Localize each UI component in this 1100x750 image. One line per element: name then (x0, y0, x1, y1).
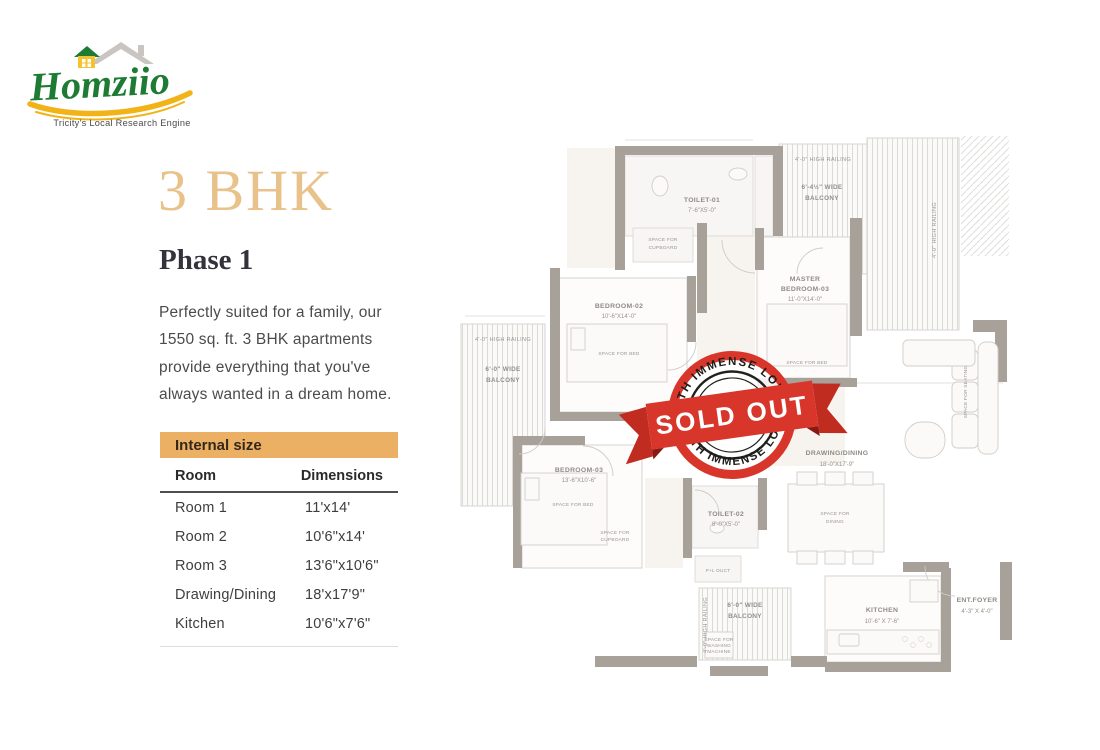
logo-graphic: Homziio Tricity's Local Research Engine (26, 38, 216, 134)
table-row: Room 1 11'x14' (160, 493, 398, 522)
label-washing-1: SPACE FOR (704, 637, 733, 643)
page-title: 3 BHK (158, 162, 334, 220)
label-toilet-02: TOILET-02 (708, 511, 744, 518)
dims-bedroom-02: 10'-6"X14'-0" (602, 314, 637, 320)
label-kitchen: KITCHEN (866, 607, 898, 614)
label-washing-2: WASHING (707, 643, 731, 649)
room-dimensions: 13'6"x10'6" (305, 558, 383, 574)
label-balcony-bottom-2: BALCONY (728, 613, 762, 620)
room-name: Room 3 (175, 558, 305, 574)
homziio-logo[interactable]: Homziio Tricity's Local Research Engine (26, 38, 216, 134)
label-railing-top: 4'-0" HIGH RAILING (795, 157, 851, 163)
column-dimensions: Dimensions (301, 468, 383, 484)
dims-toilet-01: 7'-6"X5'-0" (688, 208, 716, 214)
brochure-page: Homziio Tricity's Local Research Engine … (0, 0, 1100, 750)
column-room: Room (175, 468, 301, 484)
brand-text: Homziio (28, 57, 171, 109)
dims-kitchen: 10'-6" X 7'-6" (865, 619, 900, 625)
label-bed-2: SPACE FOR BED (598, 351, 639, 357)
label-bed-master: SPACE FOR BED (786, 360, 827, 366)
label-master-2: BEDROOM-03 (781, 286, 829, 293)
label-duct: P+L DUCT (706, 568, 731, 574)
label-railing-right: 4'-0" HIGH RAILING (932, 202, 938, 258)
table-row: Drawing/Dining 18'x17'9" (160, 580, 398, 609)
label-seating: SPACE FOR SEATING (963, 366, 969, 419)
dims-toilet-02: 8'-0"X5'-0" (712, 522, 740, 528)
label-foyer: ENT.FOYER (957, 597, 998, 604)
label-cupboard-3b: CUPBOARD (601, 537, 630, 543)
label-railing-left: 4'-0" HIGH RAILING (475, 337, 531, 343)
label-dining-2: DINING (826, 519, 844, 525)
room-dimensions: 18'x17'9" (305, 587, 383, 603)
page-subtitle: Phase 1 (159, 246, 253, 275)
label-bed-3: SPACE FOR BED (552, 502, 593, 508)
label-balcony-left-2: BALCONY (486, 377, 520, 384)
description-text: Perfectly suited for a family, our 1550 … (159, 299, 411, 408)
dims-bedroom-03: 13'-6"X10'-6" (562, 478, 597, 484)
table-row: Kitchen 10'6"x7'6" (160, 609, 398, 638)
label-drawing-dining: DRAWING/DINING (806, 450, 869, 457)
dims-drawing-dining: 18'-0"X17'-9" (820, 462, 855, 468)
room-name: Drawing/Dining (175, 587, 305, 603)
dims-foyer: 4'-3" X 4'-0" (961, 609, 992, 615)
label-master-1: MASTER (790, 276, 821, 283)
room-name: Room 1 (175, 500, 305, 516)
table-bottom-rule (160, 638, 398, 647)
logo-tagline: Tricity's Local Research Engine (53, 118, 190, 128)
label-washing-3: MACHINE (707, 649, 731, 655)
table-row: Room 3 13'6"x10'6" (160, 551, 398, 580)
label-bedroom-02: BEDROOM-02 (595, 303, 643, 310)
table-row: Room 2 10'6"x14' (160, 522, 398, 551)
floor-plan: TOILET-01 7'-6"X5'-0" 4'-0" HIGH RAILING… (455, 128, 1015, 695)
label-cupboard-2: CUPBOARD (649, 245, 678, 251)
label-cupboard-3a: SPACE FOR (600, 530, 629, 536)
dims-master: 11'-0"X14'-0" (788, 297, 822, 303)
room-dimensions: 10'6"x7'6" (305, 616, 383, 632)
label-balcony-bottom-1: 6'-0" WIDE (727, 602, 763, 609)
label-bedroom-03: BEDROOM-03 (555, 467, 603, 474)
room-dimensions: 10'6"x14' (305, 529, 383, 545)
room-name: Kitchen (175, 616, 305, 632)
label-balcony-top-1: 6'-4½" WIDE (802, 183, 843, 191)
label-dining-1: SPACE FOR (820, 511, 849, 517)
label-toilet-01: TOILET-01 (684, 197, 720, 204)
table-column-headers: Room Dimensions (160, 458, 398, 493)
internal-size-table: Internal size Room Dimensions Room 1 11'… (160, 432, 398, 647)
room-name: Room 2 (175, 529, 305, 545)
table-header-band: Internal size (160, 432, 398, 458)
room-dimensions: 11'x14' (305, 500, 383, 516)
label-balcony-top-2: BALCONY (805, 195, 839, 202)
label-cupboard-1: SPACE FOR (648, 237, 677, 243)
label-balcony-left-1: 6'-0" WIDE (485, 366, 521, 373)
